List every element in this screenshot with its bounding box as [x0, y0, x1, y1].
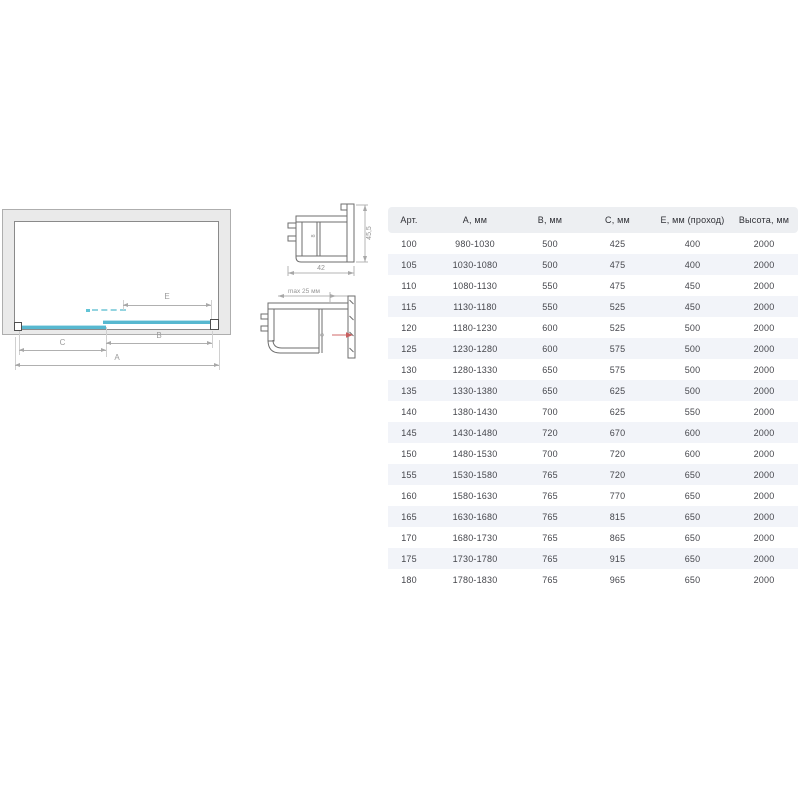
table-cell: 115 — [388, 302, 430, 312]
table-row: 1201180-12306005255002000 — [388, 317, 798, 338]
table-cell: 1680-1730 — [430, 533, 520, 543]
table-cell: 1180-1230 — [430, 323, 520, 333]
table-cell: 450 — [655, 281, 730, 291]
right-wall-bracket — [210, 319, 219, 330]
table-cell: 965 — [580, 575, 655, 585]
table-cell: 650 — [655, 512, 730, 522]
table-row: 1301280-13306505755002000 — [388, 359, 798, 380]
profile-top-member — [296, 216, 347, 222]
table-cell: 650 — [655, 470, 730, 480]
profile-bottom-curve — [273, 340, 319, 348]
table-cell: 2000 — [730, 344, 798, 354]
table-row: 1701680-17307658656502000 — [388, 527, 798, 548]
dimension-line-c — [19, 350, 106, 351]
table-cell: 140 — [388, 407, 430, 417]
table-cell: 500 — [520, 260, 580, 270]
table-cell: 135 — [388, 386, 430, 396]
table-cell: 765 — [520, 554, 580, 564]
table-cell: 2000 — [730, 281, 798, 291]
table-cell: 500 — [655, 344, 730, 354]
table-cell: 550 — [655, 407, 730, 417]
dimension-line-b — [106, 343, 212, 344]
table-row: 1601580-16307657706502000 — [388, 485, 798, 506]
shower-frame — [14, 221, 219, 330]
table-cell: 2000 — [730, 407, 798, 417]
table-cell: 700 — [520, 449, 580, 459]
table-cell: 600 — [520, 344, 580, 354]
table-cell: 980-1030 — [430, 239, 520, 249]
profile-clip-finger — [288, 223, 296, 228]
table-cell: 600 — [520, 323, 580, 333]
table-cell: 575 — [580, 365, 655, 375]
profile-clip-finger — [261, 326, 268, 331]
table-cell: 720 — [520, 428, 580, 438]
profile-right-wall — [348, 296, 355, 358]
table-cell: 550 — [520, 302, 580, 312]
table-cell: 1630-1680 — [430, 512, 520, 522]
table-cell: 2000 — [730, 386, 798, 396]
profile-clip-finger — [261, 314, 268, 319]
profile-bottom-member — [296, 256, 347, 262]
table-cell: 2000 — [730, 470, 798, 480]
extension-line — [219, 340, 220, 370]
table-cell: 815 — [580, 512, 655, 522]
table-cell: 165 — [388, 512, 430, 522]
table-cell: 650 — [520, 386, 580, 396]
table-cell: 600 — [655, 449, 730, 459]
table-cell: 2000 — [730, 260, 798, 270]
profile-width-dim: 42 — [317, 265, 325, 272]
table-cell: 1130-1180 — [430, 302, 520, 312]
table-row: 1101080-11305504754502000 — [388, 275, 798, 296]
profile-top-lip — [341, 204, 347, 210]
table-cell: 500 — [655, 386, 730, 396]
table-cell: 650 — [655, 575, 730, 585]
table-cell: 1530-1580 — [430, 470, 520, 480]
table-row: 1351330-13806506255002000 — [388, 380, 798, 401]
dimension-label-b: B — [106, 332, 212, 340]
table-header-row: Арт.А, ммВ, ммС, ммЕ, мм (проход)Высота,… — [388, 207, 798, 233]
table-cell: 150 — [388, 449, 430, 459]
table-cell: 2000 — [730, 428, 798, 438]
table-cell: 155 — [388, 470, 430, 480]
table-cell: 720 — [580, 449, 655, 459]
table-cell: 450 — [655, 302, 730, 312]
table-cell: 500 — [520, 239, 580, 249]
column-header: Е, мм (проход) — [655, 215, 730, 225]
extension-line — [212, 331, 213, 348]
table-row: 1151130-11805505254502000 — [388, 296, 798, 317]
table-cell: 765 — [520, 575, 580, 585]
door-travel-dashed-line — [92, 309, 126, 311]
table-cell: 1480-1530 — [430, 449, 520, 459]
table-cell: 770 — [580, 491, 655, 501]
extension-line — [211, 300, 212, 319]
profile-right-wall — [347, 204, 354, 262]
table-cell: 1580-1630 — [430, 491, 520, 501]
profile-left-web — [268, 309, 274, 341]
spec-sheet: E B C A 4 — [0, 0, 800, 800]
table-cell: 865 — [580, 533, 655, 543]
dimension-label-c: C — [19, 339, 106, 347]
left-wall-bracket — [14, 322, 22, 331]
column-header: С, мм — [580, 215, 655, 225]
table-cell: 1030-1080 — [430, 260, 520, 270]
table-cell: 765 — [520, 533, 580, 543]
dimension-label-a: A — [15, 354, 219, 362]
table-cell: 1430-1480 — [430, 428, 520, 438]
table-cell: 130 — [388, 365, 430, 375]
sliding-door-panel — [103, 320, 213, 324]
table-cell: 525 — [580, 323, 655, 333]
table-cell: 2000 — [730, 302, 798, 312]
table-cell: 1280-1330 — [430, 365, 520, 375]
table-cell: 670 — [580, 428, 655, 438]
table-cell: 2000 — [730, 365, 798, 375]
spec-table: Арт.А, ммВ, ммС, ммЕ, мм (проход)Высота,… — [388, 207, 798, 590]
table-cell: 425 — [580, 239, 655, 249]
table-cell: 525 — [580, 302, 655, 312]
table-cell: 120 — [388, 323, 430, 333]
glass-thickness-dim: 8 — [311, 234, 317, 237]
table-row: 1501480-15307007206002000 — [388, 443, 798, 464]
table-cell: 400 — [655, 239, 730, 249]
table-cell: 1780-1830 — [430, 575, 520, 585]
table-cell: 650 — [655, 491, 730, 501]
table-cell: 915 — [580, 554, 655, 564]
dimension-line-e — [123, 305, 211, 306]
table-cell: 625 — [580, 407, 655, 417]
table-row: 1251230-12806005755002000 — [388, 338, 798, 359]
profile-height-dim: 45,5 — [366, 226, 373, 240]
table-cell: 2000 — [730, 323, 798, 333]
table-cell: 720 — [580, 470, 655, 480]
dimension-line-a — [15, 365, 219, 366]
table-cell: 650 — [655, 554, 730, 564]
table-cell: 650 — [655, 533, 730, 543]
table-row: 1801780-18307659656502000 — [388, 569, 798, 590]
table-cell: 575 — [580, 344, 655, 354]
table-cell: 500 — [655, 365, 730, 375]
table-cell: 160 — [388, 491, 430, 501]
dimension-label-e: E — [123, 293, 211, 301]
table-cell: 550 — [520, 281, 580, 291]
adjustment-profile-section: max 25 мм 8 — [258, 288, 388, 366]
table-cell: 170 — [388, 533, 430, 543]
table-cell: 2000 — [730, 554, 798, 564]
profile-top-member — [268, 303, 348, 309]
table-cell: 2000 — [730, 512, 798, 522]
profile-clip-finger — [288, 236, 296, 241]
table-cell: 1730-1780 — [430, 554, 520, 564]
table-row: 1401380-14307006255502000 — [388, 401, 798, 422]
table-cell: 650 — [520, 365, 580, 375]
table-cell: 700 — [520, 407, 580, 417]
table-cell: 2000 — [730, 575, 798, 585]
table-cell: 2000 — [730, 449, 798, 459]
table-row: 1451430-14807206706002000 — [388, 422, 798, 443]
column-header: Высота, мм — [730, 215, 798, 225]
table-cell: 1330-1380 — [430, 386, 520, 396]
max-adjust-dim: max 25 мм — [288, 288, 321, 295]
door-travel-start-dot — [86, 309, 90, 312]
column-header: Арт. — [388, 215, 430, 225]
wall-profile-section: 42 45,5 8 — [258, 196, 388, 286]
column-header: А, мм — [430, 215, 520, 225]
fixed-glass-panel — [18, 325, 106, 329]
table-cell: 1380-1430 — [430, 407, 520, 417]
table-cell: 2000 — [730, 491, 798, 501]
table-row: 1651630-16807658156502000 — [388, 506, 798, 527]
table-cell: 110 — [388, 281, 430, 291]
table-cell: 2000 — [730, 533, 798, 543]
table-cell: 100 — [388, 239, 430, 249]
table-cell: 475 — [580, 281, 655, 291]
table-cell: 180 — [388, 575, 430, 585]
profile-left-web — [296, 222, 302, 256]
table-row: 100980-10305004254002000 — [388, 233, 798, 254]
table-cell: 500 — [655, 323, 730, 333]
table-cell: 145 — [388, 428, 430, 438]
table-cell: 765 — [520, 470, 580, 480]
table-cell: 105 — [388, 260, 430, 270]
table-cell: 765 — [520, 512, 580, 522]
glass-thickness-dim: 8 — [320, 333, 326, 336]
table-cell: 600 — [655, 428, 730, 438]
table-cell: 125 — [388, 344, 430, 354]
table-cell: 175 — [388, 554, 430, 564]
table-row: 1551530-15807657206502000 — [388, 464, 798, 485]
table-row: 1051030-10805004754002000 — [388, 254, 798, 275]
column-header: В, мм — [520, 215, 580, 225]
table-row: 1751730-17807659156502000 — [388, 548, 798, 569]
table-cell: 1230-1280 — [430, 344, 520, 354]
table-cell: 2000 — [730, 239, 798, 249]
table-cell: 765 — [520, 491, 580, 501]
table-cell: 625 — [580, 386, 655, 396]
table-cell: 475 — [580, 260, 655, 270]
table-cell: 400 — [655, 260, 730, 270]
table-cell: 1080-1130 — [430, 281, 520, 291]
